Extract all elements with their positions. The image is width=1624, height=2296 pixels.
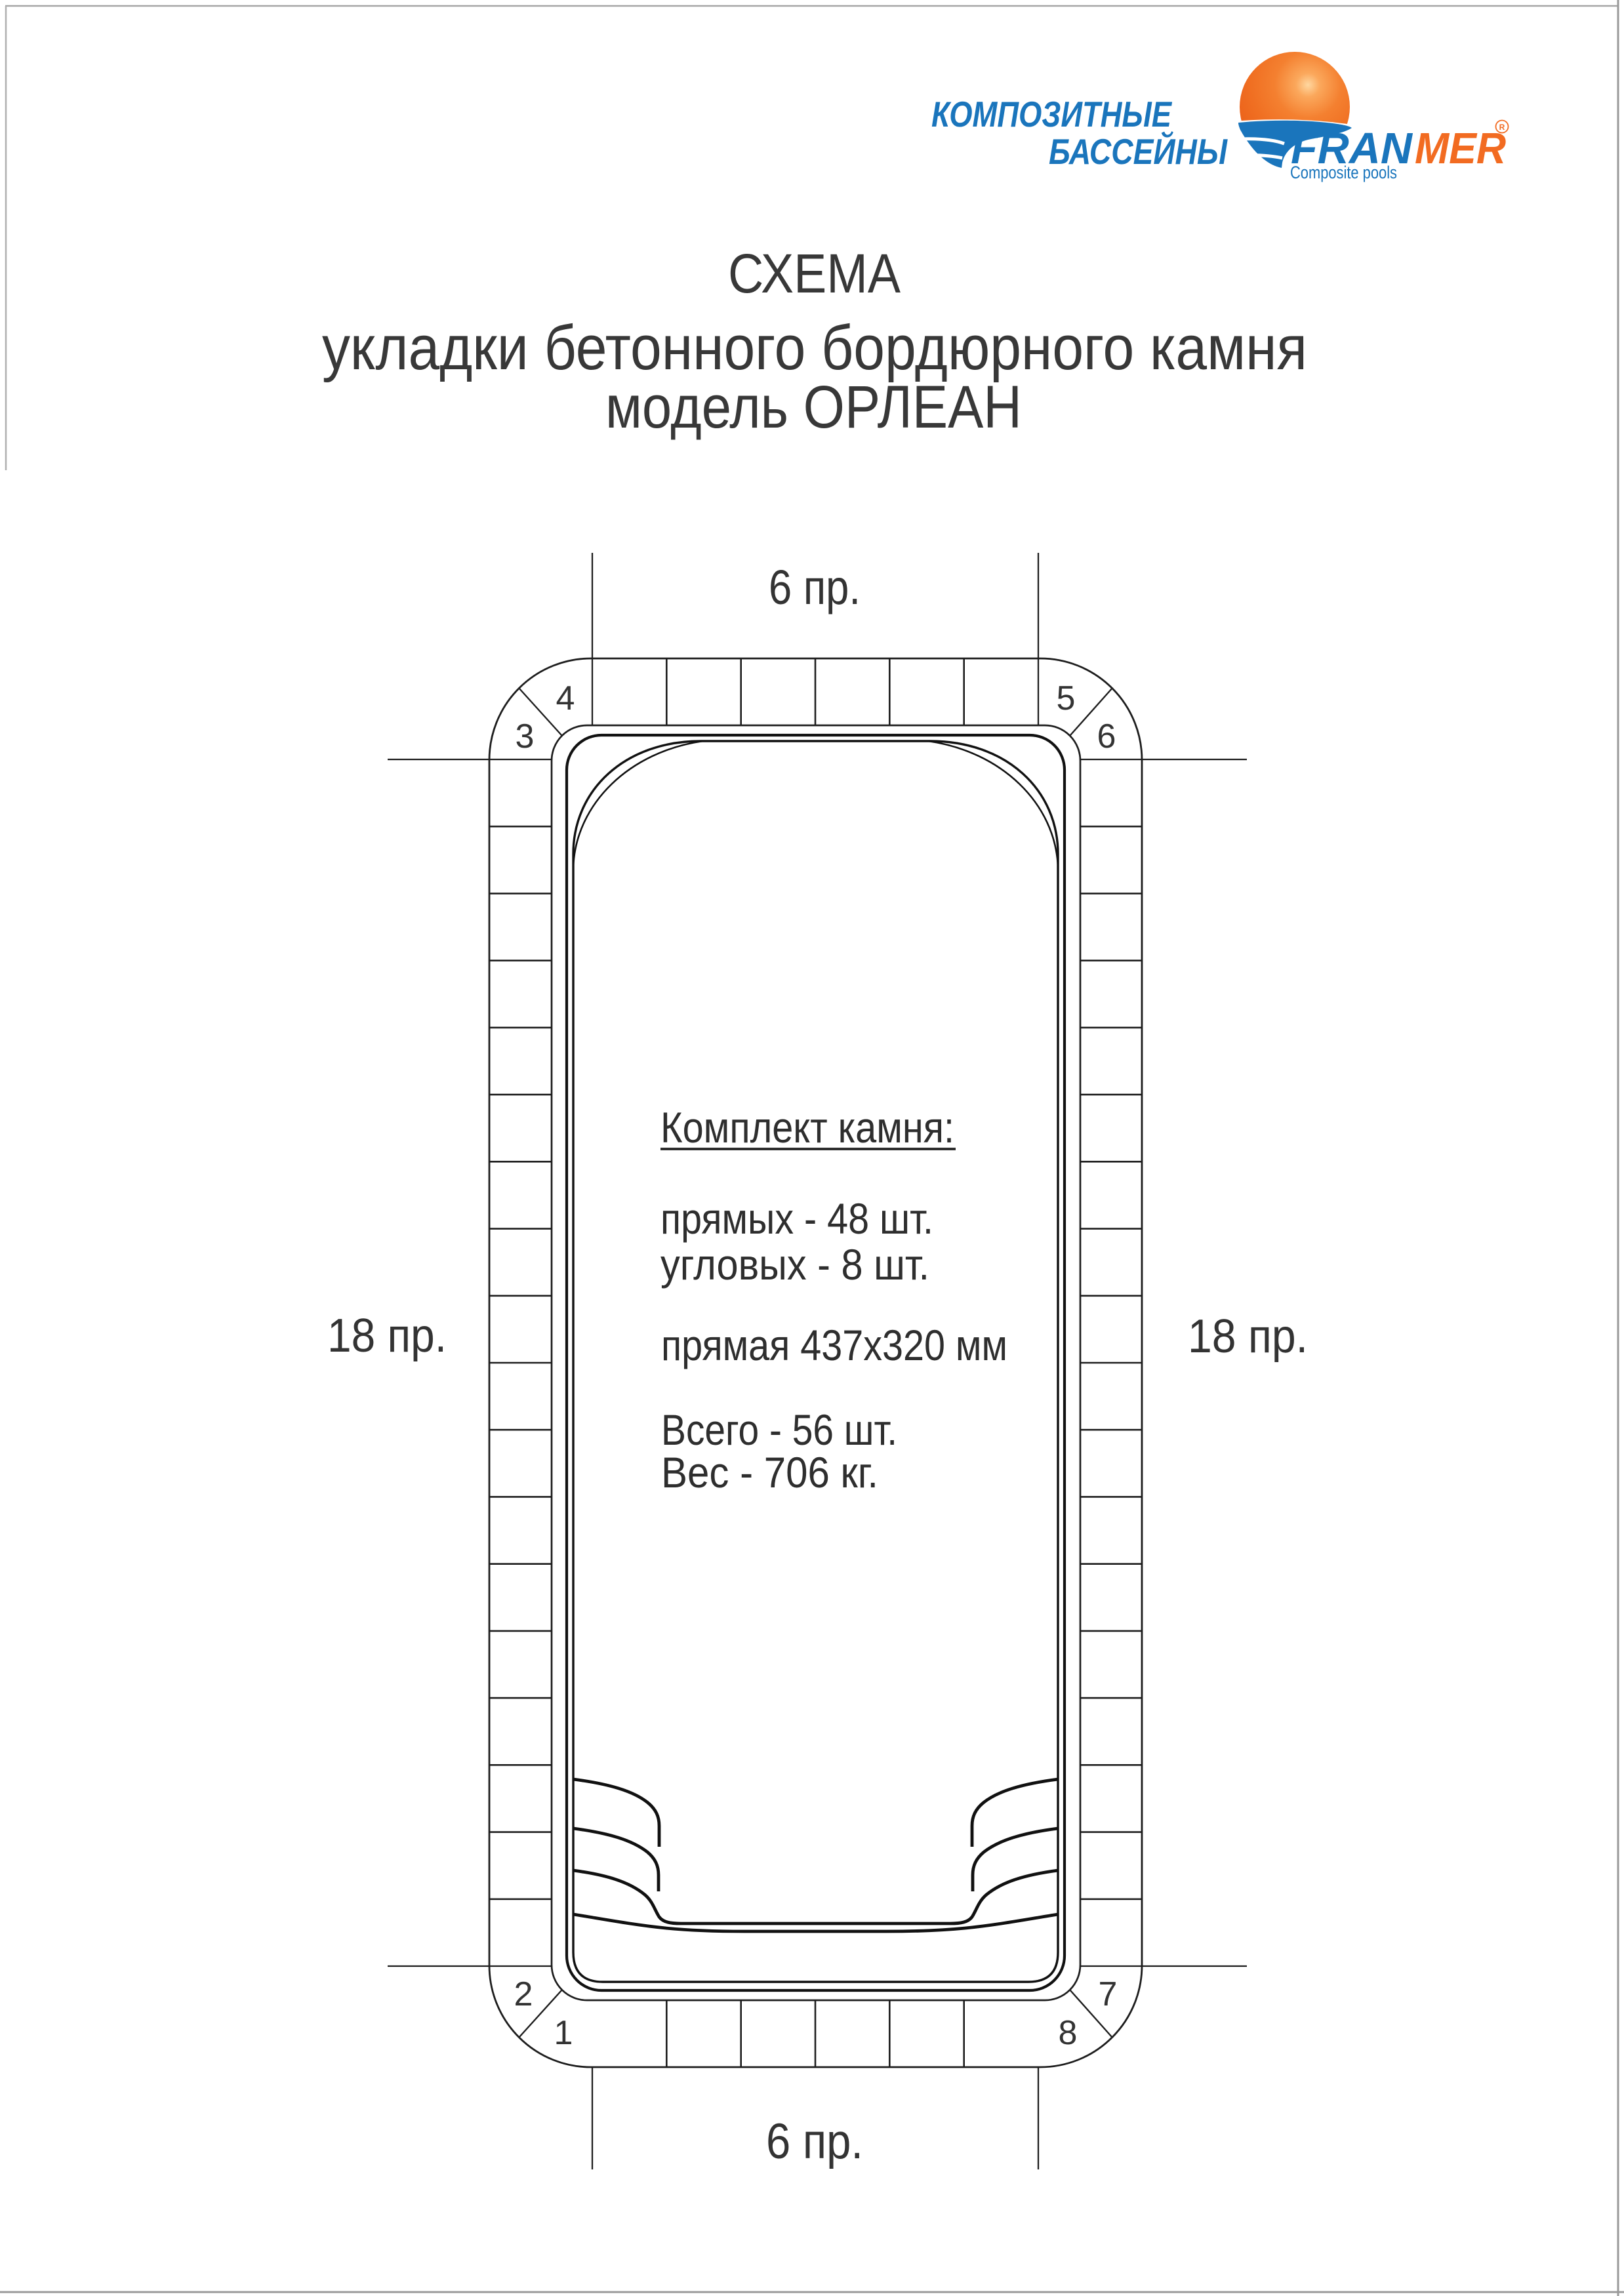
svg-text:MER: MER (1415, 124, 1506, 173)
svg-text:угловых - 8 шт.: угловых - 8 шт. (660, 1240, 929, 1289)
svg-text:18 пр.: 18 пр. (327, 1310, 447, 1362)
svg-text:прямых - 48 шт.: прямых - 48 шт. (660, 1194, 933, 1243)
svg-text:Комплект камня:: Комплект камня: (660, 1103, 954, 1152)
svg-text:БАССЕЙНЫ: БАССЕЙНЫ (1049, 131, 1228, 172)
svg-text:Composite pools: Composite pools (1290, 163, 1397, 182)
svg-text:Вес - 706 кг.: Вес - 706 кг. (661, 1448, 878, 1497)
svg-text:6 пр.: 6 пр. (769, 560, 861, 614)
svg-text:8: 8 (1059, 2014, 1078, 2052)
svg-text:Всего - 56 шт.: Всего - 56 шт. (661, 1405, 897, 1454)
svg-text:1: 1 (554, 2014, 573, 2052)
svg-text:СХЕМА: СХЕМА (728, 243, 901, 304)
svg-text:укладки бетонного бордюрного к: укладки бетонного бордюрного камня (322, 313, 1307, 383)
svg-text:4: 4 (556, 679, 575, 717)
svg-text:модель ОРЛЕАН: модель ОРЛЕАН (605, 374, 1022, 441)
svg-text:прямая 437х320 мм: прямая 437х320 мм (661, 1321, 1007, 1369)
svg-text:КОМПОЗИТНЫЕ: КОМПОЗИТНЫЕ (931, 94, 1173, 134)
svg-text:2: 2 (514, 1975, 533, 2013)
svg-text:6 пр.: 6 пр. (766, 2114, 863, 2169)
svg-text:18 пр.: 18 пр. (1188, 1310, 1308, 1363)
svg-text:R: R (1499, 123, 1505, 132)
svg-text:3: 3 (516, 717, 535, 755)
svg-text:6: 6 (1097, 717, 1116, 755)
svg-text:7: 7 (1099, 1975, 1118, 2013)
svg-text:5: 5 (1057, 679, 1076, 717)
